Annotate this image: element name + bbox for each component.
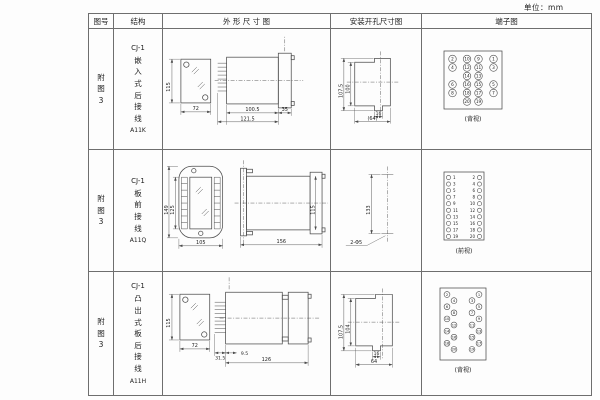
svg-text:9: 9	[477, 57, 480, 62]
model-label: CJ-1	[131, 44, 145, 52]
svg-text:3: 3	[471, 299, 473, 303]
svg-text:20: 20	[452, 348, 457, 352]
dim-height: 115	[166, 318, 172, 327]
dim-height: 115	[166, 82, 172, 91]
svg-text:3: 3	[492, 65, 495, 70]
front-view	[180, 294, 210, 340]
dim-outer-height: 107.5	[338, 84, 344, 98]
dim-width: (64)	[367, 116, 377, 122]
svg-text:10: 10	[470, 201, 476, 206]
mounting-drawing-a11h: 107.5 104 16 64	[331, 272, 421, 395]
terminal-cell-row1: 2109141211314136161558181772019 (背视)	[422, 29, 591, 150]
fig-no-cell-row2: 附图3	[89, 150, 114, 272]
svg-text:12: 12	[470, 208, 476, 213]
svg-text:19: 19	[476, 99, 482, 104]
outline-cell-row2: 149 125 105 156 115	[163, 150, 331, 272]
dim-inner-height: 104	[346, 324, 352, 333]
svg-text:17: 17	[477, 342, 482, 346]
dim-flange: 35	[282, 107, 288, 113]
svg-text:15: 15	[476, 82, 482, 87]
dim-width: 105	[196, 240, 205, 246]
dim-hole-spacing: 133	[366, 205, 372, 214]
dim-depth-total: 121.5	[240, 116, 254, 122]
structure-code-label: A11K	[130, 127, 146, 134]
terminal-diagram-a11h: 2468101214161820135791113151719 (背视)	[422, 272, 591, 395]
dimension-lines	[172, 59, 291, 122]
outline-drawing-a11h: 115 72 31.5 9.5 126	[163, 272, 330, 395]
dim-side-height: 115	[310, 205, 316, 214]
dim-depth: 156	[277, 239, 286, 245]
structure-cell-row2: CJ-1 板前接线 A11Q	[114, 150, 163, 272]
dim-offset: 9.5	[241, 351, 248, 357]
fig-no-label: 附图3	[95, 193, 107, 228]
structure-type-label: 凸出式板后接线	[132, 293, 144, 374]
mounting-cell-row2: 133 2-Φ5	[331, 150, 422, 272]
svg-text:17: 17	[453, 227, 459, 232]
dim-width: 64	[371, 359, 377, 365]
mounting-drawing-a11q: 133 2-Φ5	[331, 150, 421, 272]
fig-no-label: 附图3	[95, 72, 107, 107]
terminal-box	[440, 288, 486, 360]
fig-no-cell-row1: 附图3	[89, 29, 114, 150]
svg-text:8: 8	[453, 311, 456, 315]
cutout-shape	[356, 294, 393, 350]
svg-text:1: 1	[478, 293, 480, 297]
structure-type-label: 板前接线	[132, 188, 144, 235]
svg-text:14: 14	[464, 74, 470, 79]
dim-width: 72	[193, 106, 199, 112]
svg-text:5: 5	[478, 305, 480, 309]
svg-text:6: 6	[472, 188, 475, 193]
svg-text:16: 16	[452, 336, 457, 340]
svg-text:8: 8	[451, 91, 454, 96]
svg-text:18: 18	[464, 91, 470, 96]
svg-text:9: 9	[478, 317, 481, 321]
svg-text:13: 13	[453, 214, 459, 219]
svg-text:11: 11	[476, 65, 482, 70]
mounting-cell-row3: 107.5 104 16 64	[331, 272, 422, 395]
header-terminal-diagram: 端子图	[422, 14, 591, 29]
svg-text:19: 19	[470, 348, 475, 352]
svg-text:14: 14	[470, 214, 476, 219]
svg-text:20: 20	[464, 99, 470, 104]
terminal-diagram-a11q: 1234567891011121314151617181920 (前视)	[422, 150, 591, 272]
svg-text:18: 18	[445, 342, 450, 346]
svg-text:1: 1	[492, 57, 495, 62]
svg-text:15: 15	[453, 221, 459, 226]
svg-text:2: 2	[451, 57, 454, 62]
dim-terminal-depth: 31.5	[215, 355, 225, 361]
svg-text:6: 6	[451, 82, 454, 87]
structure-code-label: A11Q	[130, 237, 146, 244]
unit-label: 单位：mm	[524, 2, 564, 13]
structure-type-label: 嵌入式后接线	[132, 55, 144, 125]
svg-text:13: 13	[476, 74, 482, 79]
svg-text:9: 9	[453, 201, 456, 206]
dimension-table: 图号 结构 外 形 尺 寸 图 安装开孔尺寸图 端子图 附图3 CJ-1 嵌入式…	[88, 13, 592, 396]
terminal-diagram-a11k: 2109141211314136161558181772019 (背视)	[422, 29, 591, 150]
svg-text:19: 19	[453, 234, 459, 239]
svg-text:10: 10	[464, 57, 470, 62]
dim-inner-height: 100	[346, 84, 352, 93]
header-mounting-dims: 安装开孔尺寸图	[331, 14, 422, 29]
svg-text:10: 10	[445, 317, 450, 321]
svg-text:4: 4	[472, 182, 475, 187]
svg-text:3: 3	[453, 182, 456, 187]
header-outline-dims: 外 形 尺 寸 图	[163, 14, 331, 29]
svg-text:7: 7	[453, 195, 456, 200]
outline-drawing-a11q: 149 125 105 156 115	[163, 150, 330, 272]
dim-width: 72	[192, 343, 198, 349]
front-view	[181, 59, 211, 103]
svg-text:2: 2	[446, 293, 448, 297]
svg-text:8: 8	[472, 195, 475, 200]
svg-text:5: 5	[453, 188, 456, 193]
view-caption: (背视)	[465, 115, 482, 123]
terminal-circles: 2468101214161820135791113151719	[444, 292, 482, 353]
model-label: CJ-1	[131, 282, 145, 290]
svg-text:13: 13	[477, 329, 482, 333]
svg-text:4: 4	[453, 299, 456, 303]
terminal-circles: 2109141211314136161558181772019	[449, 55, 498, 105]
outline-drawing-a11k: 115 72 100.5 35 121.5	[163, 29, 330, 150]
svg-text:2: 2	[472, 175, 475, 180]
outline-cell-row3: 115 72 31.5 9.5 126	[163, 272, 331, 395]
svg-text:11: 11	[470, 323, 475, 327]
dim-inner-height: 125	[170, 205, 176, 214]
terminal-rows: 1234567891011121314151617181920	[446, 175, 481, 239]
terminal-cell-row3: 2468101214161820135791113151719 (背视)	[422, 272, 591, 395]
svg-text:1: 1	[453, 175, 456, 180]
fig-no-cell-row3: 附图3	[89, 272, 114, 395]
structure-code-label: A11H	[130, 378, 146, 385]
front-view	[179, 166, 223, 238]
side-view	[241, 168, 325, 236]
svg-text:16: 16	[464, 82, 470, 87]
cutout-shape	[355, 58, 391, 110]
svg-text:7: 7	[492, 91, 495, 96]
dim-depth-inner: 100.5	[245, 107, 259, 113]
dim-depth-total: 126	[262, 357, 271, 363]
svg-text:6: 6	[446, 305, 449, 309]
header-structure: 结构	[114, 14, 163, 29]
structure-cell-row3: CJ-1 凸出式板后接线 A11H	[114, 272, 163, 395]
svg-text:4: 4	[451, 65, 454, 70]
fig-no-label: 附图3	[95, 316, 107, 351]
model-label: CJ-1	[131, 177, 145, 185]
svg-text:12: 12	[464, 65, 470, 70]
mounting-cell-row1: 107.5 100 16 (64)	[331, 29, 422, 150]
svg-text:18: 18	[470, 227, 476, 232]
svg-text:5: 5	[492, 82, 495, 87]
terminal-cell-row2: 1234567891011121314151617181920 (前视)	[422, 150, 591, 272]
dim-notch: 16	[374, 351, 380, 357]
header-fig-no: 图号	[89, 14, 114, 29]
svg-text:17: 17	[476, 91, 482, 96]
svg-text:7: 7	[471, 311, 473, 315]
svg-text:20: 20	[470, 234, 476, 239]
structure-cell-row1: CJ-1 嵌入式后接线 A11K	[114, 29, 163, 150]
dim-hole-size: 2-Φ5	[350, 240, 362, 246]
view-caption: (背视)	[455, 366, 472, 374]
svg-text:14: 14	[445, 329, 450, 333]
dim-outer-height: 149	[164, 205, 170, 214]
view-caption: (前视)	[456, 247, 473, 255]
svg-text:12: 12	[452, 323, 457, 327]
svg-text:15: 15	[470, 336, 475, 340]
extension-lines	[169, 59, 291, 125]
dim-outer-height: 107.5	[338, 325, 344, 339]
svg-text:16: 16	[470, 221, 476, 226]
outline-cell-row1: 115 72 100.5 35 121.5	[163, 29, 331, 150]
svg-text:11: 11	[453, 208, 459, 213]
mounting-drawing-a11k: 107.5 100 16 (64)	[331, 29, 421, 150]
